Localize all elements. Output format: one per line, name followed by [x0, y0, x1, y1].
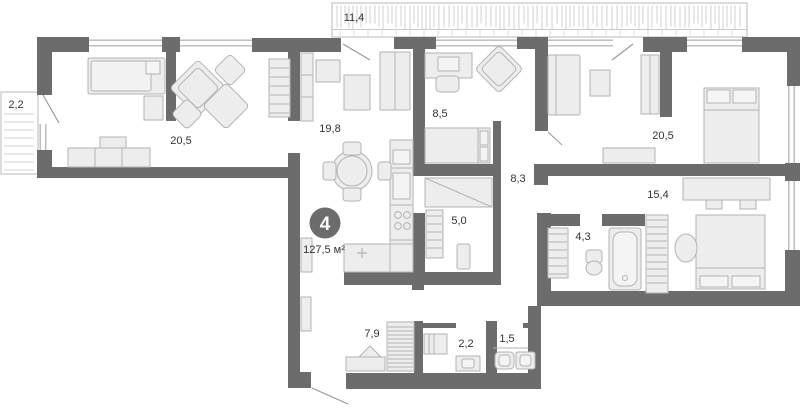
svg-text:8,5: 8,5 [432, 108, 447, 120]
svg-text:2,2: 2,2 [458, 338, 473, 350]
svg-text:1,5: 1,5 [499, 333, 514, 345]
svg-text:2,2: 2,2 [8, 99, 23, 111]
svg-text:4: 4 [320, 214, 331, 235]
svg-text:127,5 м²: 127,5 м² [303, 244, 345, 256]
svg-text:11,4: 11,4 [344, 12, 365, 24]
svg-text:8,3: 8,3 [510, 173, 525, 185]
svg-text:5,0: 5,0 [451, 215, 466, 227]
svg-text:20,5: 20,5 [652, 130, 673, 142]
svg-text:20,5: 20,5 [170, 135, 191, 147]
svg-text:7,9: 7,9 [364, 328, 379, 340]
svg-text:19,8: 19,8 [319, 123, 340, 135]
svg-text:4,3: 4,3 [575, 231, 590, 243]
svg-text:15,4: 15,4 [647, 189, 668, 201]
